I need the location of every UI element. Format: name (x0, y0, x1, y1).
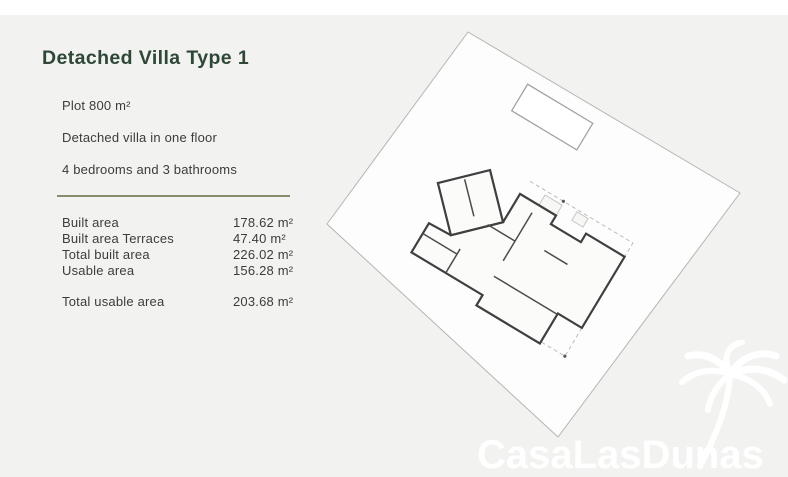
area-label: Total built area (62, 247, 150, 262)
table-row: Built area Terraces 47.40 m² (62, 232, 302, 248)
spec-rooms: 4 bedrooms and 3 bathrooms (62, 163, 237, 176)
info-panel: Detached Villa Type 1 Plot 800 m² Detach… (0, 0, 330, 477)
area-value: 156.28 m² (233, 264, 293, 278)
area-value: 47.40 m² (233, 232, 286, 246)
divider (57, 195, 290, 197)
area-label: Built area (62, 215, 119, 230)
flyer-page: CasaLasDunas Detached Villa Type 1 Plot … (0, 0, 788, 477)
area-value: 178.62 m² (233, 216, 293, 230)
area-value: 226.02 m² (233, 248, 293, 262)
table-row: Built area 178.62 m² (62, 216, 302, 232)
page-title: Detached Villa Type 1 (42, 47, 249, 70)
table-row: Usable area 156.28 m² (62, 264, 302, 280)
area-label: Built area Terraces (62, 231, 174, 246)
spec-floor: Detached villa in one floor (62, 131, 237, 144)
area-label: Usable area (62, 263, 134, 278)
spec-list: Plot 800 m² Detached villa in one floor … (62, 99, 237, 195)
area-label: Total usable area (62, 294, 164, 309)
table-row: Total built area 226.02 m² (62, 248, 302, 264)
area-table: Built area 178.62 m² Built area Terraces… (62, 216, 302, 311)
spec-plot: Plot 800 m² (62, 99, 237, 112)
table-row-total: Total usable area 203.68 m² (62, 295, 302, 311)
area-value: 203.68 m² (233, 295, 293, 309)
